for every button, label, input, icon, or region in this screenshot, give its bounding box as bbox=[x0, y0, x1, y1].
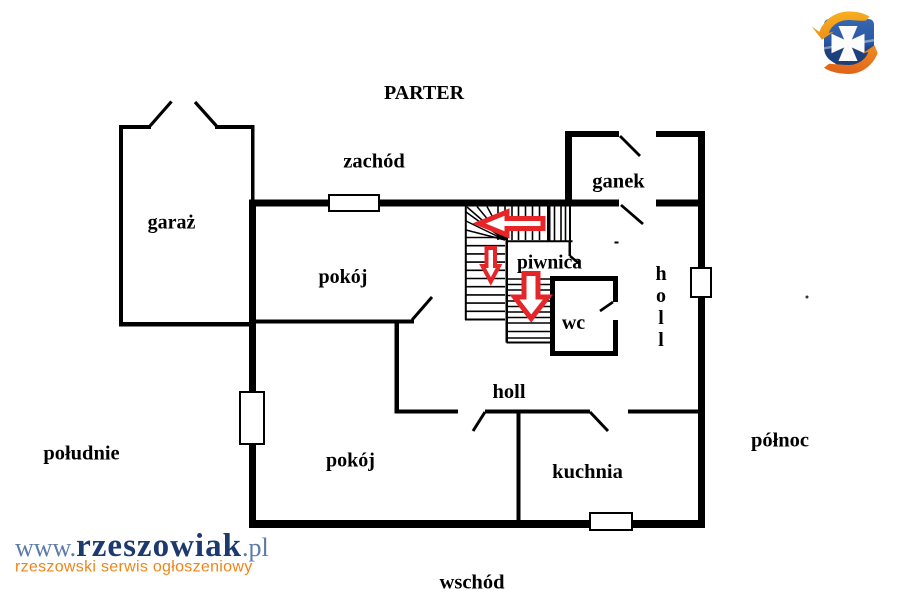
svg-text:l: l bbox=[658, 307, 664, 329]
svg-text:ganek: ganek bbox=[592, 171, 645, 193]
svg-text:holl: holl bbox=[492, 381, 525, 403]
svg-text:wschód: wschód bbox=[440, 572, 506, 594]
svg-text:północ: północ bbox=[751, 430, 809, 452]
svg-text:piwnica: piwnica bbox=[517, 253, 582, 274]
svg-text:rzeszowski serwis ogłoszeniowy: rzeszowski serwis ogłoszeniowy bbox=[15, 559, 253, 576]
svg-text:wc: wc bbox=[562, 312, 585, 334]
svg-text:pokój: pokój bbox=[319, 266, 368, 288]
svg-text:PARTER: PARTER bbox=[384, 82, 465, 104]
svg-text:kuchnia: kuchnia bbox=[552, 461, 623, 483]
svg-text:pokój: pokój bbox=[326, 450, 375, 472]
svg-text:l: l bbox=[658, 329, 664, 351]
svg-text:garaż: garaż bbox=[148, 212, 196, 234]
svg-text:zachód: zachód bbox=[343, 151, 405, 173]
svg-text:h: h bbox=[655, 263, 666, 285]
svg-text:południe: południe bbox=[43, 443, 119, 465]
svg-text:o: o bbox=[656, 285, 666, 307]
